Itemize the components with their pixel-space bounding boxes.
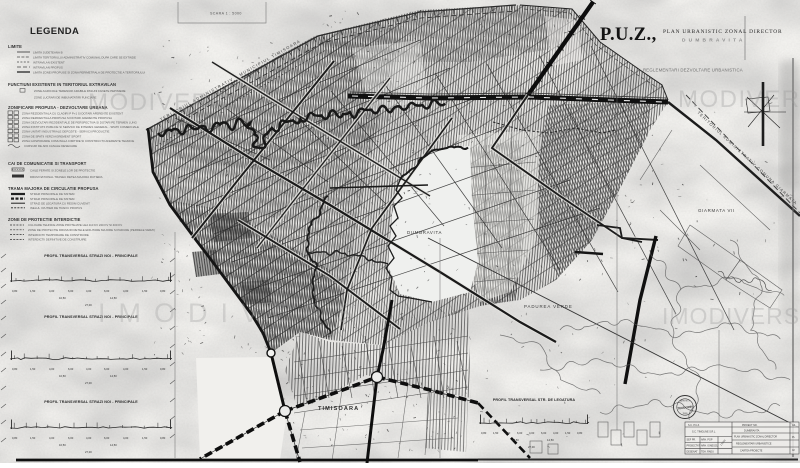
svg-text:SCARA 1 : 5000: SCARA 1 : 5000 bbox=[210, 12, 242, 16]
svg-text:0,80: 0,80 bbox=[481, 431, 487, 435]
svg-text:6,00: 6,00 bbox=[68, 367, 74, 371]
svg-text:6,00: 6,00 bbox=[104, 367, 110, 371]
svg-text:INTRAVILAN PROPUS: INTRAVILAN PROPUS bbox=[33, 65, 63, 69]
svg-text:PROFIL TRANSVERSAL STR. DE LEG: PROFIL TRANSVERSAL STR. DE LEGATURA bbox=[493, 398, 576, 402]
svg-text:DUMBRAVITA: DUMBRAVITA bbox=[682, 38, 746, 44]
svg-text:27,00: 27,00 bbox=[85, 381, 92, 385]
svg-text:STRAZI DE LEGATURA CU REGIM CU: STRAZI DE LEGATURA CU REGIM CUVENIT bbox=[30, 201, 90, 205]
svg-text:4,00: 4,00 bbox=[123, 367, 129, 371]
svg-text:4,00: 4,00 bbox=[86, 436, 92, 440]
svg-text:0,80: 0,80 bbox=[12, 289, 18, 293]
svg-text:1,50: 1,50 bbox=[30, 289, 36, 293]
svg-text:6,00: 6,00 bbox=[68, 436, 74, 440]
svg-text:27,00: 27,00 bbox=[85, 303, 92, 307]
svg-text:4,00: 4,00 bbox=[505, 431, 511, 435]
svg-text:ZONA GOSPODARIE COMUNALA CIMIT: ZONA GOSPODARIE COMUNALA CIMITIRE SI CON… bbox=[22, 139, 134, 143]
svg-text:LIMITA JUDETEANA B: LIMITA JUDETEANA B bbox=[33, 50, 63, 54]
svg-text:GIARMATA VII: GIARMATA VII bbox=[698, 208, 735, 213]
svg-text:DUMBRAVITA: DUMBRAVITA bbox=[407, 230, 442, 235]
svg-text:CURSURI DE APA CANALE DESECARE: CURSURI DE APA CANALE DESECARE bbox=[24, 144, 77, 148]
svg-text:MODIVERS: MODIVERS bbox=[88, 89, 228, 116]
svg-text:ZONA DEZVOLTARI REZIDENTIALE D: ZONA DEZVOLTARI REZIDENTIALE DE PERSPECT… bbox=[22, 121, 138, 125]
svg-text:MODIVERS: MODIVERS bbox=[678, 86, 800, 113]
svg-text:1,50: 1,50 bbox=[30, 367, 36, 371]
svg-text:4,00: 4,00 bbox=[123, 436, 129, 440]
svg-text:10,50: 10,50 bbox=[59, 296, 66, 300]
svg-text:1,50: 1,50 bbox=[142, 367, 148, 371]
svg-text:10,50: 10,50 bbox=[512, 438, 519, 442]
svg-text:6,00: 6,00 bbox=[68, 289, 74, 293]
svg-text:TIMIS: TIMIS bbox=[682, 413, 688, 415]
svg-text:ARH. IONESCU: ARH. IONESCU bbox=[701, 445, 719, 448]
svg-text:INTERDICTII DEFINITIVE DE CONS: INTERDICTII DEFINITIVE DE CONSTRUIRE bbox=[28, 238, 87, 242]
svg-text:27,00: 27,00 bbox=[528, 445, 535, 449]
svg-text:14,50: 14,50 bbox=[547, 438, 554, 442]
svg-text:LEGENDA: LEGENDA bbox=[30, 26, 79, 37]
svg-text:CARTEA PROIECTE: CARTEA PROIECTE bbox=[740, 450, 763, 453]
svg-text:STRAZI PRINCIPALE DE SISTEM: STRAZI PRINCIPALE DE SISTEM bbox=[30, 192, 75, 196]
svg-text:FUNCTIUNI EXISTENTE IN TERITOR: FUNCTIUNI EXISTENTE IN TERITORIUL EXTRAV… bbox=[8, 82, 116, 87]
svg-text:INTERDICTII TEMPORARE DE CONST: INTERDICTII TEMPORARE DE CONSTRUIRE bbox=[28, 233, 89, 237]
svg-text:1,50: 1,50 bbox=[493, 431, 499, 435]
svg-text:SEF PR.: SEF PR. bbox=[687, 439, 697, 442]
svg-text:TEH. RADU: TEH. RADU bbox=[701, 451, 714, 454]
svg-text:6,00: 6,00 bbox=[104, 289, 110, 293]
svg-text:IMODIVERS: IMODIVERS bbox=[98, 298, 367, 328]
svg-text:14,50: 14,50 bbox=[110, 374, 117, 378]
svg-text:INTRAVILAN EXISTENT: INTRAVILAN EXISTENT bbox=[33, 60, 65, 64]
svg-text:IMODIVERS: IMODIVERS bbox=[662, 303, 800, 329]
svg-text:REGLEMENTARI DEZVOLTARE URBA: REGLEMENTARI DEZVOLTARE URBANISTICA bbox=[643, 68, 743, 73]
svg-text:4,00: 4,00 bbox=[123, 289, 129, 293]
svg-text:PLAN URBANISTIC ZONAL DIREC: PLAN URBANISTIC ZONAL DIRECTOR bbox=[734, 436, 777, 439]
svg-text:ZONA REZIDENTIALA PROPUSA SI D: ZONA REZIDENTIALA PROPUSA SI DOTARI AFER… bbox=[22, 116, 112, 120]
svg-text:CAI DE COMUNICATIE SI TRANSPOR: CAI DE COMUNICATIE SI TRANSPORT bbox=[8, 161, 87, 166]
svg-text:PROFIL TRANSVERSAL STRAZI NOI: PROFIL TRANSVERSAL STRAZI NOI - PRINCIPA… bbox=[44, 400, 138, 404]
svg-text:0,80: 0,80 bbox=[160, 436, 166, 440]
svg-text:TRAMA MAJORA DE CIRCULATIE PR: TRAMA MAJORA DE CIRCULATIE PROPUSA bbox=[8, 186, 99, 191]
svg-text:4,00: 4,00 bbox=[86, 367, 92, 371]
svg-text:ZONA UNITATI INDUSTRIALE DEPOZ: ZONA UNITATI INDUSTRIALE DEPOZITE - SERV… bbox=[22, 130, 109, 134]
svg-text:P.U.Z.,: P.U.Z., bbox=[600, 25, 657, 45]
svg-text:0,80: 0,80 bbox=[577, 431, 583, 435]
svg-text:4,00: 4,00 bbox=[49, 436, 55, 440]
svg-text:TIMISOARA: TIMISOARA bbox=[318, 406, 359, 412]
svg-text:ZONE DE PROTECTIE DRUMURI RETE: ZONE DE PROTECTIE DRUMURI RETELE EDILITA… bbox=[28, 228, 155, 232]
svg-text:PROFIL TRANSVERSAL STRAZI NOI: PROFIL TRANSVERSAL STRAZI NOI - PRINCIPA… bbox=[44, 254, 138, 258]
svg-text:10,50: 10,50 bbox=[59, 374, 66, 378]
svg-text:ARHITECT: ARHITECT bbox=[680, 400, 690, 403]
svg-text:DUMBRAVITA: DUMBRAVITA bbox=[744, 430, 760, 433]
svg-text:6,00: 6,00 bbox=[541, 431, 547, 435]
svg-text:4,00: 4,00 bbox=[529, 431, 535, 435]
svg-text:PROIECT NR.: PROIECT NR. bbox=[742, 424, 758, 427]
svg-text:0,80: 0,80 bbox=[12, 367, 18, 371]
svg-text:ZONA INSTITUTII PUBLICE SI SER: ZONA INSTITUTII PUBLICE SI SERVICII DE I… bbox=[22, 125, 139, 129]
svg-text:1,50: 1,50 bbox=[142, 289, 148, 293]
svg-text:1,50: 1,50 bbox=[142, 436, 148, 440]
svg-text:STRAZI PRINCIPALE DE SISTEM: STRAZI PRINCIPALE DE SISTEM bbox=[30, 197, 75, 201]
svg-text:REGLEMENTARI URBANISTICE: REGLEMENTARI URBANISTICE bbox=[736, 443, 772, 446]
svg-text:ZONE DE PROTECTIE INTERDICTIE: ZONE DE PROTECTIE INTERDICTIE bbox=[8, 217, 81, 222]
svg-text:14,50: 14,50 bbox=[110, 443, 117, 447]
svg-text:6,00: 6,00 bbox=[517, 431, 523, 435]
svg-text:1,50: 1,50 bbox=[30, 436, 36, 440]
svg-text:4,00: 4,00 bbox=[86, 289, 92, 293]
svg-text:DESENAT: DESENAT bbox=[687, 451, 699, 454]
svg-text:ZONA DE SPATII VERZI AGREMENT: ZONA DE SPATII VERZI AGREMENT SPORT bbox=[22, 134, 81, 138]
svg-text:4,00: 4,00 bbox=[553, 431, 559, 435]
svg-text:PADUREA VERDE: PADUREA VERDE bbox=[524, 304, 573, 309]
svg-text:0,80: 0,80 bbox=[160, 367, 166, 371]
svg-text:27,00: 27,00 bbox=[85, 450, 92, 454]
svg-text:S.C. TIMOLINE S.R.L.: S.C. TIMOLINE S.R.L. bbox=[692, 431, 716, 434]
svg-text:PROIECTAT: PROIECTAT bbox=[687, 445, 701, 448]
svg-text:INELUL I RUTIER DE TRAFIC PROP: INELUL I RUTIER DE TRAFIC PROPUS bbox=[30, 206, 82, 210]
svg-text:1,50: 1,50 bbox=[565, 431, 571, 435]
svg-text:LIMITE: LIMITE bbox=[8, 44, 22, 49]
svg-text:LIMITA TERITORIULUI ADMINISTRA: LIMITA TERITORIULUI ADMINISTRATIV COMUNA… bbox=[33, 55, 136, 59]
svg-text:CAILE FERATE SI ZONELE LOR DE: CAILE FERATE SI ZONELE LOR DE PROTECTIE bbox=[30, 169, 95, 173]
svg-text:4,00: 4,00 bbox=[49, 289, 55, 293]
svg-text:10,50: 10,50 bbox=[59, 443, 66, 447]
svg-text:6,00: 6,00 bbox=[104, 436, 110, 440]
svg-text:S.C. P.U.Z.: S.C. P.U.Z. bbox=[688, 424, 700, 427]
svg-text:DRUM NATIONAL TRASEU RETEA MAJ: DRUM NATIONAL TRASEU RETEA MAJORA RUTIER… bbox=[30, 175, 103, 179]
svg-text:PLAN URBANISTIC ZONAL DIRECTOR: PLAN URBANISTIC ZONAL DIRECTOR bbox=[663, 29, 782, 35]
svg-text:CULOARE TEHNICE ZONE PROTEJATE: CULOARE TEHNICE ZONE PROTEJATE LEA 110 K… bbox=[28, 223, 122, 227]
svg-text:ARH. POP: ARH. POP bbox=[701, 439, 713, 442]
svg-text:4,00: 4,00 bbox=[49, 367, 55, 371]
svg-text:LIMITA ZONEI PROPUSE SI ZONA P: LIMITA ZONEI PROPUSE SI ZONA PERIMETRALA… bbox=[33, 70, 145, 74]
svg-text:0,80: 0,80 bbox=[12, 436, 18, 440]
svg-text:0,80: 0,80 bbox=[160, 289, 166, 293]
